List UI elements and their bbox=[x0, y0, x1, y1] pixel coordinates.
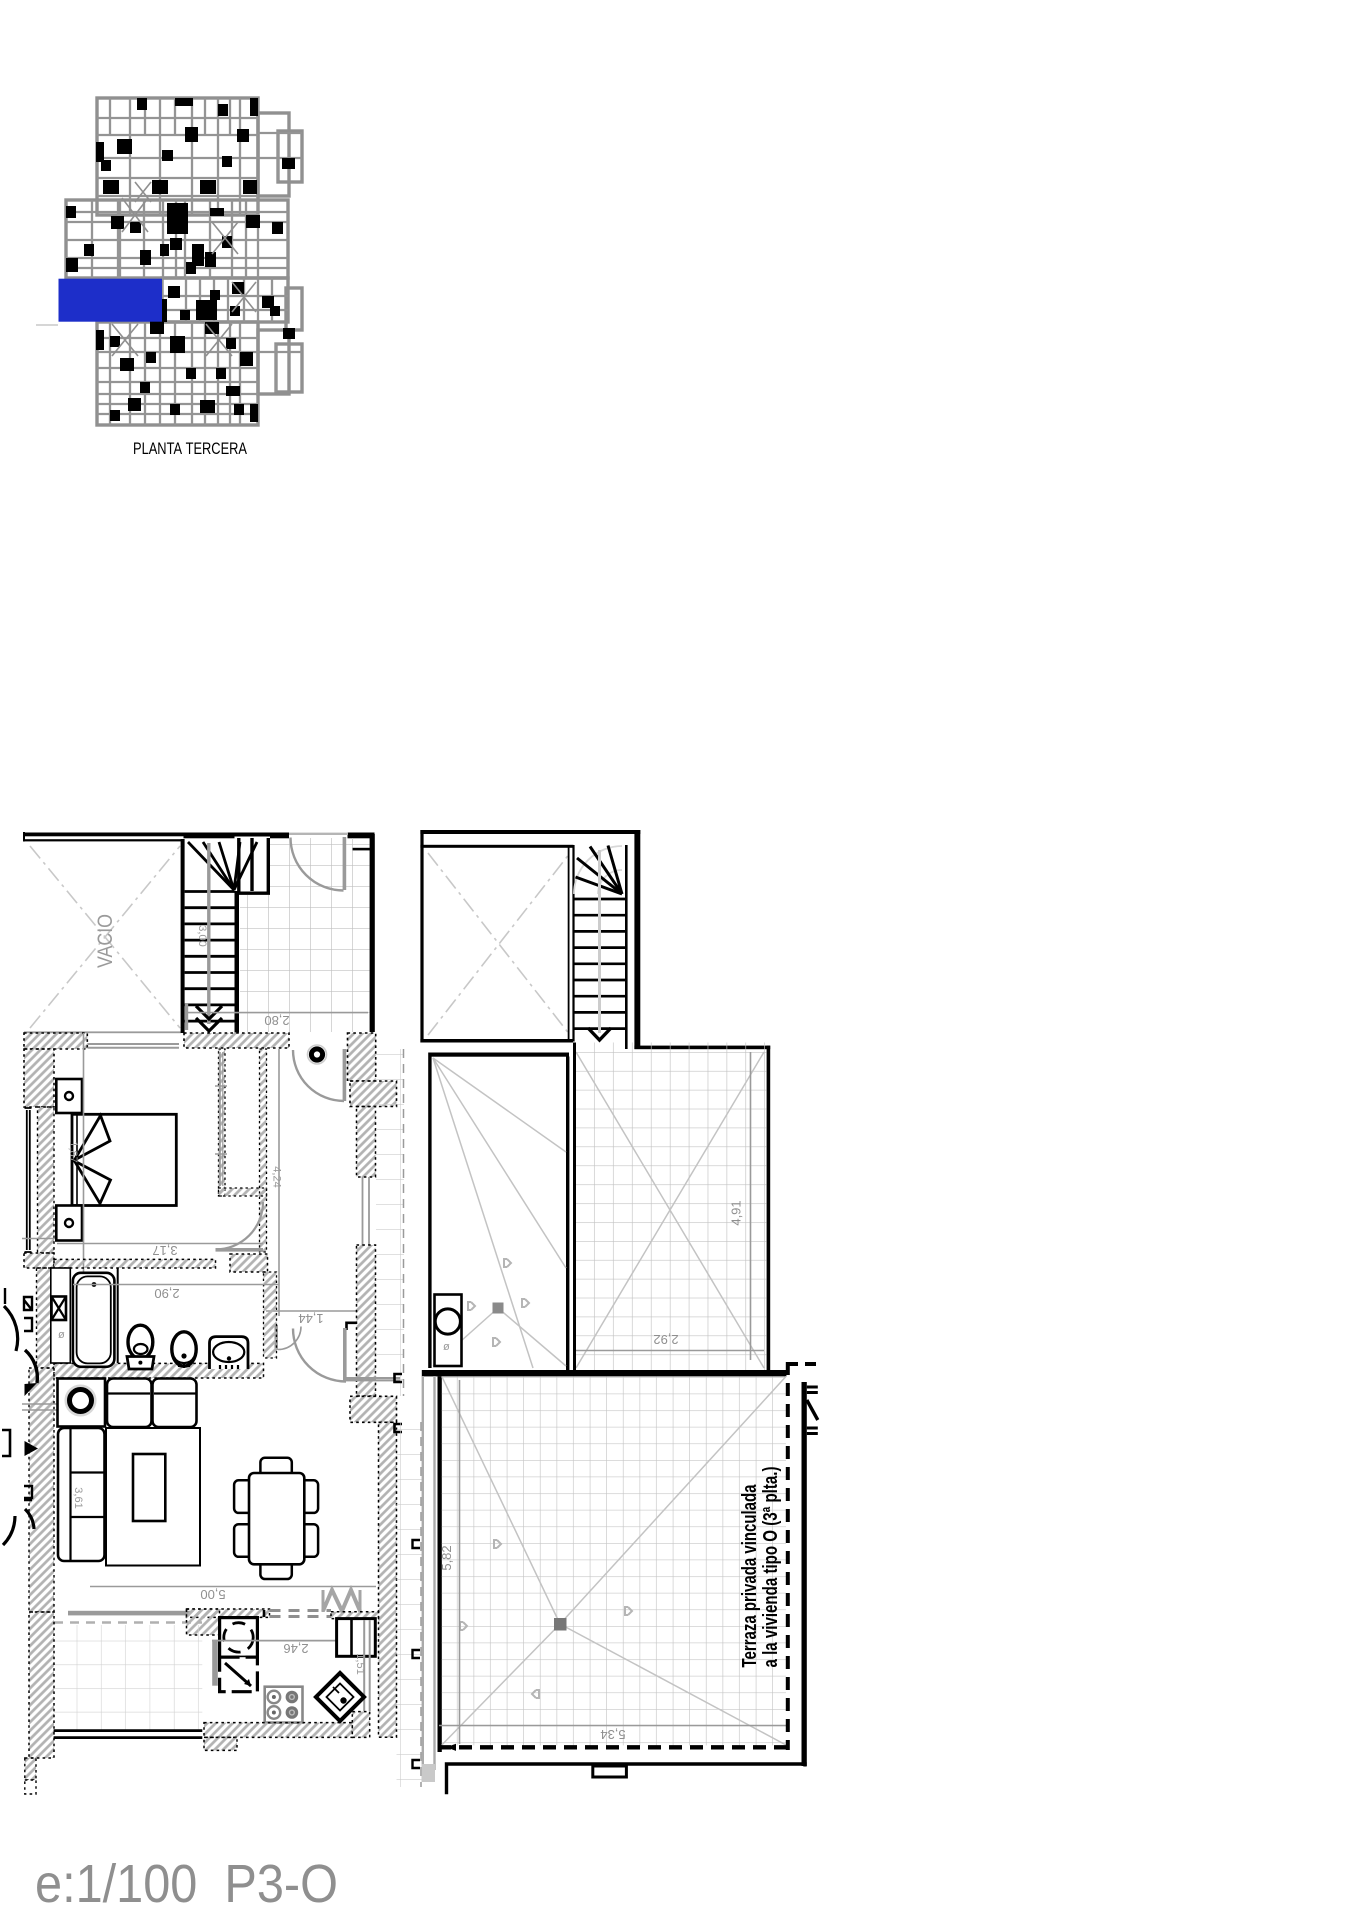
svg-text:1,44: 1,44 bbox=[298, 1311, 323, 1326]
svg-text:3,00: 3,00 bbox=[196, 925, 208, 946]
svg-text:2,90: 2,90 bbox=[154, 1286, 179, 1301]
svg-text:e:1/100 P3-O: e:1/100 P3-O bbox=[35, 1854, 338, 1914]
svg-text:a la vivienda tipo O (3ª plta.: a la vivienda tipo O (3ª plta.) bbox=[760, 1467, 782, 1668]
svg-text:5,82: 5,82 bbox=[439, 1545, 454, 1570]
svg-text:2,80: 2,80 bbox=[264, 1013, 289, 1028]
svg-text:Terraza privada vinculada: Terraza privada vinculada bbox=[739, 1484, 761, 1668]
svg-text:1,87: 1,87 bbox=[67, 1141, 79, 1162]
svg-text:5,00: 5,00 bbox=[200, 1587, 225, 1602]
svg-text:5,34: 5,34 bbox=[600, 1727, 625, 1742]
svg-text:PLANTA TERCERA: PLANTA TERCERA bbox=[133, 440, 247, 458]
svg-text:1,51: 1,51 bbox=[354, 1653, 366, 1674]
svg-text:4,91: 4,91 bbox=[729, 1200, 744, 1225]
svg-text:ø: ø bbox=[443, 1341, 450, 1353]
svg-text:3,61: 3,61 bbox=[72, 1487, 84, 1508]
svg-text:2,92: 2,92 bbox=[653, 1332, 678, 1347]
svg-text:4,24: 4,24 bbox=[271, 1166, 283, 1187]
svg-text:ø: ø bbox=[58, 1329, 65, 1341]
svg-text:3,17: 3,17 bbox=[152, 1243, 177, 1258]
svg-text:VACIO: VACIO bbox=[94, 914, 117, 968]
svg-text:2,46: 2,46 bbox=[283, 1641, 308, 1656]
